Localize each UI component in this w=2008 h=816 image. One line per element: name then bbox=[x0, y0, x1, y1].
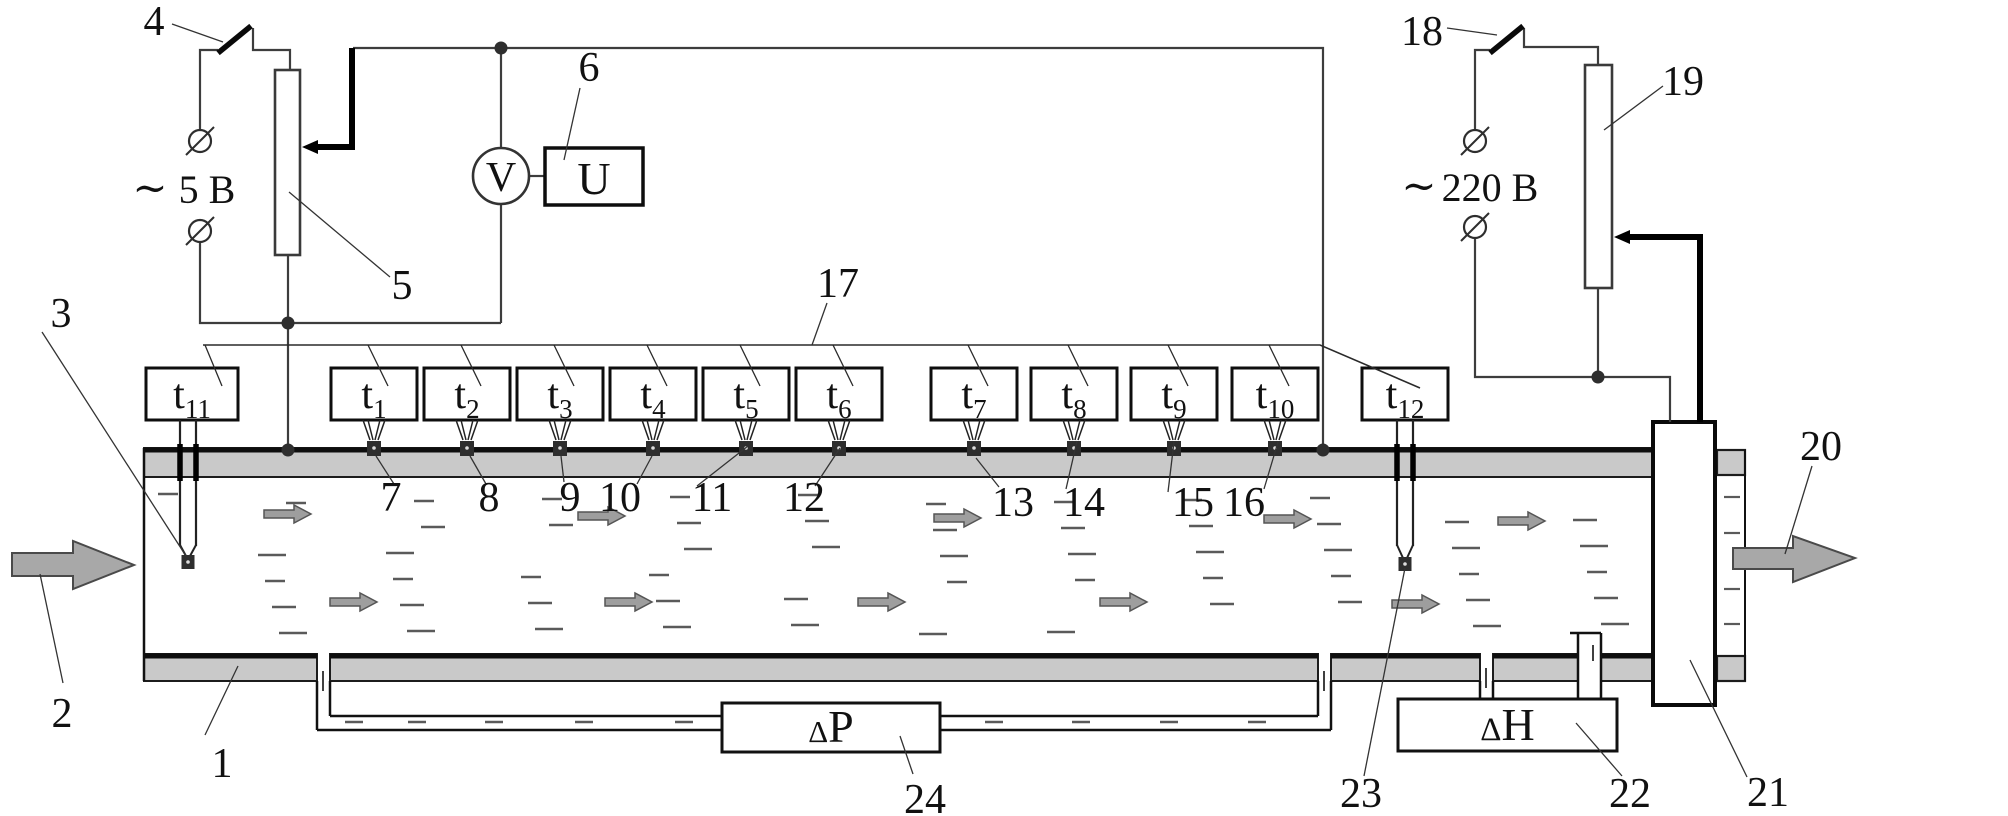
voltage-label-5v: 5 В bbox=[179, 167, 236, 212]
callout-number-18: 18 bbox=[1401, 9, 1443, 55]
callout-number-22: 22 bbox=[1609, 771, 1651, 816]
callout-number-2: 2 bbox=[52, 691, 73, 737]
callout-number-21: 21 bbox=[1747, 770, 1789, 816]
rheostat-5v bbox=[275, 70, 300, 255]
junction-dot-highlight bbox=[465, 446, 469, 450]
junction-dot-highlight bbox=[186, 560, 190, 564]
callout-number-5: 5 bbox=[392, 263, 413, 309]
outlet-unit-box bbox=[1653, 422, 1715, 705]
voltmeter-label: V bbox=[486, 155, 516, 201]
callout-number-23: 23 bbox=[1340, 771, 1382, 816]
callout-number-4: 4 bbox=[144, 0, 165, 45]
junction-dot-highlight bbox=[972, 446, 976, 450]
callout-number-3: 3 bbox=[51, 291, 72, 337]
schematic-canvas: ΔPΔHt11t1t2t3t4t5t6t7t8t9t10t12VU∼5 В∼22… bbox=[0, 0, 2008, 816]
u-display-label: U bbox=[577, 153, 610, 204]
callout-number-6: 6 bbox=[579, 45, 600, 91]
voltage-label-220v: 220 В bbox=[1442, 165, 1539, 210]
callout-number-13: 13 bbox=[992, 480, 1034, 526]
callout-number-9: 9 bbox=[560, 475, 581, 521]
callout-number-17: 17 bbox=[817, 261, 859, 307]
junction-dot bbox=[1317, 444, 1330, 457]
junction-dot-highlight bbox=[1403, 562, 1407, 566]
schematic-page: ΔPΔHt11t1t2t3t4t5t6t7t8t9t10t12VU∼5 В∼22… bbox=[0, 0, 2008, 816]
voltage-label-220v-tilde-icon: ∼ bbox=[1401, 164, 1436, 210]
rheostat-220v bbox=[1585, 65, 1612, 288]
callout-number-12: 12 bbox=[783, 475, 825, 521]
junction-dot bbox=[1592, 371, 1605, 384]
junction-dot-highlight bbox=[651, 446, 655, 450]
junction-dot-highlight bbox=[558, 446, 562, 450]
callout-number-16: 16 bbox=[1223, 480, 1265, 526]
callout-number-19: 19 bbox=[1662, 59, 1704, 105]
callout-number-11: 11 bbox=[692, 475, 732, 521]
callout-number-24: 24 bbox=[904, 777, 946, 816]
junction-dot bbox=[282, 444, 295, 457]
junction-dot-highlight bbox=[372, 446, 376, 450]
callout-number-8: 8 bbox=[479, 475, 500, 521]
callout-number-10: 10 bbox=[599, 475, 641, 521]
callout-number-7: 7 bbox=[381, 475, 402, 521]
junction-dot bbox=[282, 317, 295, 330]
junction-dot bbox=[495, 42, 508, 55]
callout-number-15: 15 bbox=[1172, 480, 1214, 526]
callout-number-20: 20 bbox=[1800, 424, 1842, 470]
outlet-stub-wall bbox=[1717, 450, 1745, 475]
outlet-stub-wall bbox=[1717, 656, 1745, 681]
voltage-label-5v-tilde-icon: ∼ bbox=[132, 166, 167, 212]
callout-number-1: 1 bbox=[212, 741, 233, 787]
callout-number-14: 14 bbox=[1063, 480, 1105, 526]
